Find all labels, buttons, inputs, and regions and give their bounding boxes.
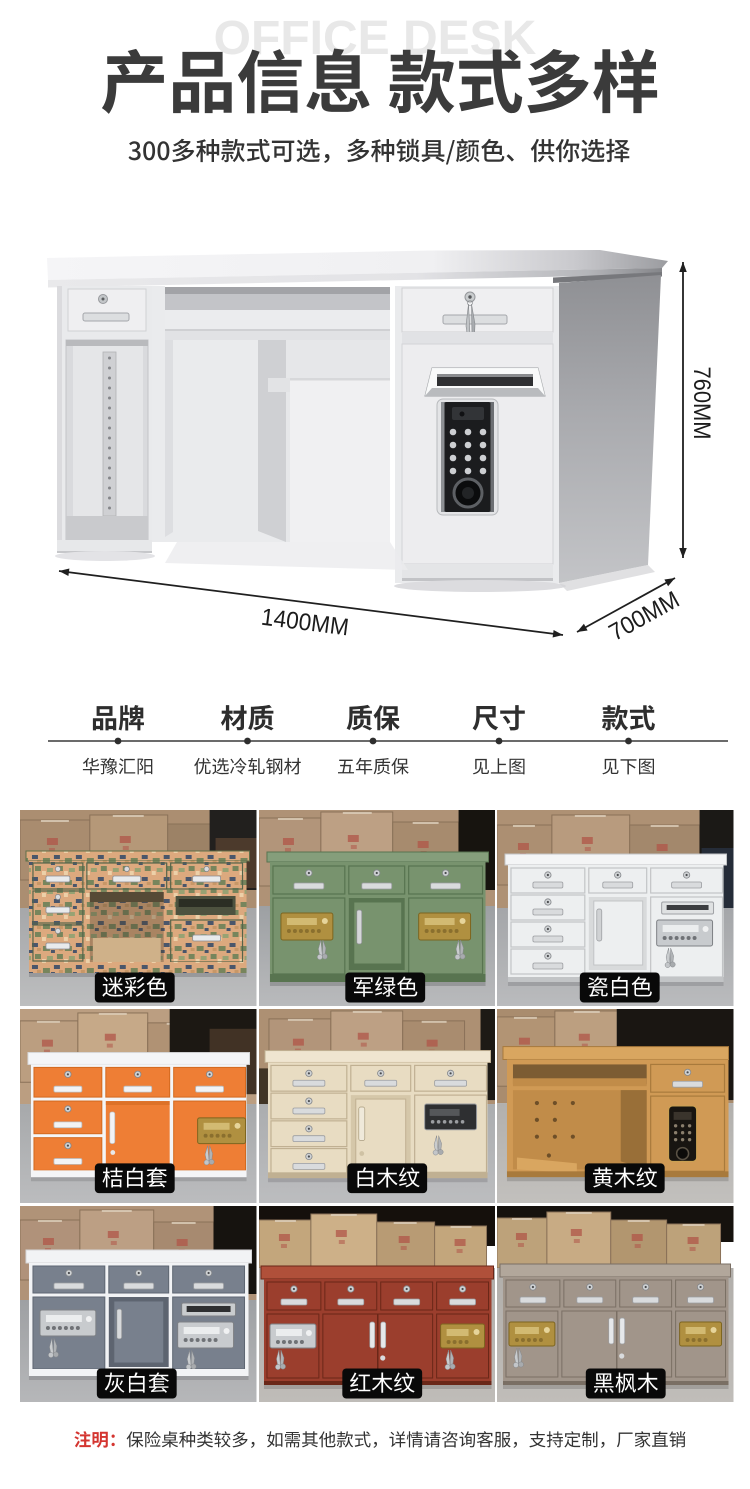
svg-text:1400MM: 1400MM: [260, 604, 351, 642]
svg-text:760MM: 760MM: [688, 367, 715, 440]
